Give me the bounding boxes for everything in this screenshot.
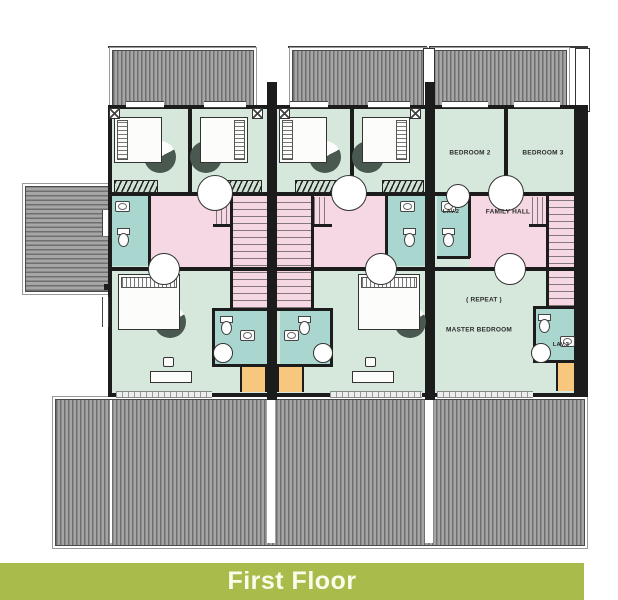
sink	[240, 330, 255, 341]
door-arc	[365, 253, 397, 285]
wall	[574, 107, 588, 395]
wall	[425, 82, 435, 400]
wall	[213, 224, 231, 227]
label-lav2: LAV.2	[443, 209, 459, 215]
door-arc	[446, 184, 470, 208]
balcony-rail	[116, 391, 212, 398]
door-arc	[494, 253, 526, 285]
window	[514, 101, 560, 108]
chair	[365, 357, 376, 367]
bed-pillows	[117, 120, 128, 160]
label-bedroom-3: BEDROOM 3	[522, 150, 563, 157]
bed	[362, 117, 410, 163]
wall	[214, 364, 267, 367]
label-bedroom-2: BEDROOM 2	[449, 150, 490, 157]
balcony-rail	[437, 391, 533, 398]
chair	[163, 357, 174, 367]
toilet	[221, 321, 232, 335]
window	[204, 101, 246, 108]
wall	[267, 82, 277, 400]
wardrobe	[114, 180, 158, 193]
wall	[230, 196, 233, 308]
roof-party-gap	[425, 400, 433, 543]
bed	[200, 117, 248, 163]
bed-pillows	[396, 120, 407, 160]
stair-landing	[314, 197, 328, 224]
window	[290, 101, 328, 108]
label-repeat-note: ( REPEAT )	[466, 297, 502, 304]
toilet	[443, 233, 454, 247]
wall	[277, 308, 330, 311]
fixture-box	[109, 108, 120, 119]
wall	[529, 224, 546, 227]
wall	[546, 196, 549, 306]
end-wall-column	[575, 48, 590, 112]
staircase	[233, 196, 267, 308]
desk	[352, 371, 394, 383]
wall	[533, 306, 582, 309]
door-arc	[331, 175, 367, 211]
door-arc	[197, 175, 233, 211]
fixture-box	[252, 108, 263, 119]
sink	[400, 201, 415, 212]
sink	[115, 201, 130, 212]
wall	[214, 308, 267, 311]
roof-ridge-line	[429, 46, 588, 48]
window	[126, 101, 164, 108]
window	[102, 297, 109, 327]
roof-party-gap	[267, 400, 275, 543]
door-arc	[313, 343, 333, 363]
wall	[148, 196, 151, 266]
label-family-hall: FAMILY HALL	[486, 209, 530, 216]
sink	[284, 330, 299, 341]
door-arc	[148, 253, 180, 285]
window	[442, 101, 488, 108]
floor-banner-title: First Floor	[227, 567, 356, 596]
toilet	[118, 233, 129, 247]
door-arc	[488, 175, 524, 211]
wall	[468, 196, 471, 258]
window	[368, 101, 410, 108]
roof-ridge-line	[288, 46, 427, 48]
roof-seam	[110, 400, 112, 543]
side-porch-roof	[25, 186, 110, 292]
toilet	[299, 321, 310, 335]
wall	[437, 256, 470, 259]
toilet	[539, 319, 550, 333]
balcony-rail	[330, 391, 422, 398]
bed	[279, 117, 327, 163]
roof-ridge-line	[108, 46, 256, 48]
floor-banner: First Floor	[0, 563, 584, 600]
bed-pillows	[282, 120, 293, 160]
staircase	[277, 196, 311, 308]
wardrobe	[382, 180, 424, 193]
desk	[150, 371, 192, 383]
fixture-box	[279, 108, 290, 119]
bed-pillows	[234, 120, 245, 160]
wall	[311, 196, 314, 308]
toilet	[404, 233, 415, 247]
car-porch-roof	[55, 399, 585, 546]
label-lav3: LAV.3	[553, 342, 569, 348]
window	[102, 210, 109, 236]
balcony-airwell	[277, 366, 304, 392]
stair-landing	[532, 197, 546, 224]
balcony-airwell	[240, 366, 267, 392]
fixture-box	[410, 108, 421, 119]
door-arc	[531, 343, 551, 363]
door-arc	[213, 343, 233, 363]
label-master-bedroom: MASTER BEDROOM	[446, 327, 512, 334]
wall	[314, 224, 332, 227]
floorplan-canvas: BEDROOM 2 BEDROOM 3 LAV.2 FAMILY HALL ( …	[0, 0, 618, 600]
wall	[277, 364, 330, 367]
bed	[114, 117, 162, 163]
